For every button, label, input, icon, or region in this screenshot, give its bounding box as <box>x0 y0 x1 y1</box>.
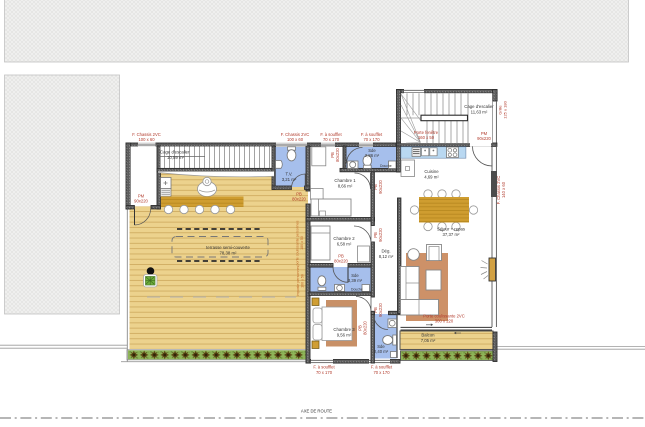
svg-text:3,39 m²: 3,39 m² <box>348 278 363 283</box>
svg-text:6,58 m²: 6,58 m² <box>337 242 352 247</box>
svg-text:80x220: 80x220 <box>292 197 306 202</box>
svg-text:Chambre 1: Chambre 1 <box>334 178 356 183</box>
svg-text:2,40 m²: 2,40 m² <box>374 349 389 354</box>
svg-text:70 x 170: 70 x 170 <box>373 370 390 375</box>
svg-text:80x220: 80x220 <box>335 147 340 161</box>
svg-text:180 x 50: 180 x 50 <box>300 236 304 250</box>
svg-text:Dég.: Dég. <box>381 249 390 254</box>
svg-text:125 x 180: 125 x 180 <box>503 100 508 118</box>
svg-text:Cuisine: Cuisine <box>424 169 439 174</box>
svg-text:11,63 m²: 11,63 m² <box>471 110 488 115</box>
svg-text:T.V.: T.V. <box>285 172 292 177</box>
svg-text:F. à soufflet: F. à soufflet <box>313 365 335 370</box>
svg-text:8,66 m²: 8,66 m² <box>338 184 353 189</box>
svg-text:90x220: 90x220 <box>477 136 491 141</box>
svg-text:Balcon: Balcon <box>421 333 435 338</box>
svg-text:Cage d'escalier: Cage d'escalier <box>160 150 190 155</box>
svg-text:78,38 m²: 78,38 m² <box>220 251 238 256</box>
svg-text:70 x 170: 70 x 170 <box>323 137 340 142</box>
svg-text:90x220: 90x220 <box>134 199 148 204</box>
svg-text:AXE DE ROUTE: AXE DE ROUTE <box>301 409 332 414</box>
svg-text:porte coulissante personnes: porte coulissante personnes <box>296 220 300 265</box>
svg-text:37,37 m²: 37,37 m² <box>443 232 461 237</box>
svg-text:100 x 60: 100 x 60 <box>138 137 155 142</box>
svg-text:140 x 60: 140 x 60 <box>501 181 506 198</box>
svg-text:90x220: 90x220 <box>378 302 383 316</box>
svg-text:70 x 170: 70 x 170 <box>363 137 380 142</box>
svg-text:terrasse semi-couverte: terrasse semi-couverte <box>206 245 250 250</box>
svg-text:Douche: Douche <box>380 164 392 168</box>
svg-text:90x220: 90x220 <box>378 227 383 241</box>
svg-text:Chambre 3: Chambre 3 <box>333 327 355 332</box>
svg-text:Douche: Douche <box>351 288 363 292</box>
svg-text:3,21 m²: 3,21 m² <box>282 177 297 182</box>
svg-text:80x220: 80x220 <box>363 320 368 334</box>
svg-text:9,56 m²: 9,56 m² <box>337 333 352 338</box>
svg-text:8,12 m²: 8,12 m² <box>379 254 394 259</box>
svg-text:2,86 m²: 2,86 m² <box>365 153 380 158</box>
svg-text:Séjour + repas: Séjour + repas <box>437 227 465 232</box>
svg-text:imposte personnes: imposte personnes <box>296 266 300 297</box>
svg-text:80x220: 80x220 <box>334 259 348 264</box>
svg-text:Cage d'escalier: Cage d'escalier <box>464 104 494 109</box>
svg-text:10,59 m²: 10,59 m² <box>167 155 185 160</box>
svg-text:70 x 170: 70 x 170 <box>316 370 333 375</box>
svg-text:100 x 50: 100 x 50 <box>301 274 305 288</box>
svg-text:100 x 60: 100 x 60 <box>287 137 304 142</box>
svg-text:7,05 m²: 7,05 m² <box>421 338 436 343</box>
svg-text:160 x 50: 160 x 50 <box>418 135 435 140</box>
svg-text:300 x 220: 300 x 220 <box>435 319 454 324</box>
svg-text:4,69 m²: 4,69 m² <box>424 175 439 180</box>
svg-text:90x220: 90x220 <box>378 179 383 193</box>
svg-text:F. à soufflet: F. à soufflet <box>371 365 393 370</box>
svg-text:Chambre 2: Chambre 2 <box>333 236 355 241</box>
